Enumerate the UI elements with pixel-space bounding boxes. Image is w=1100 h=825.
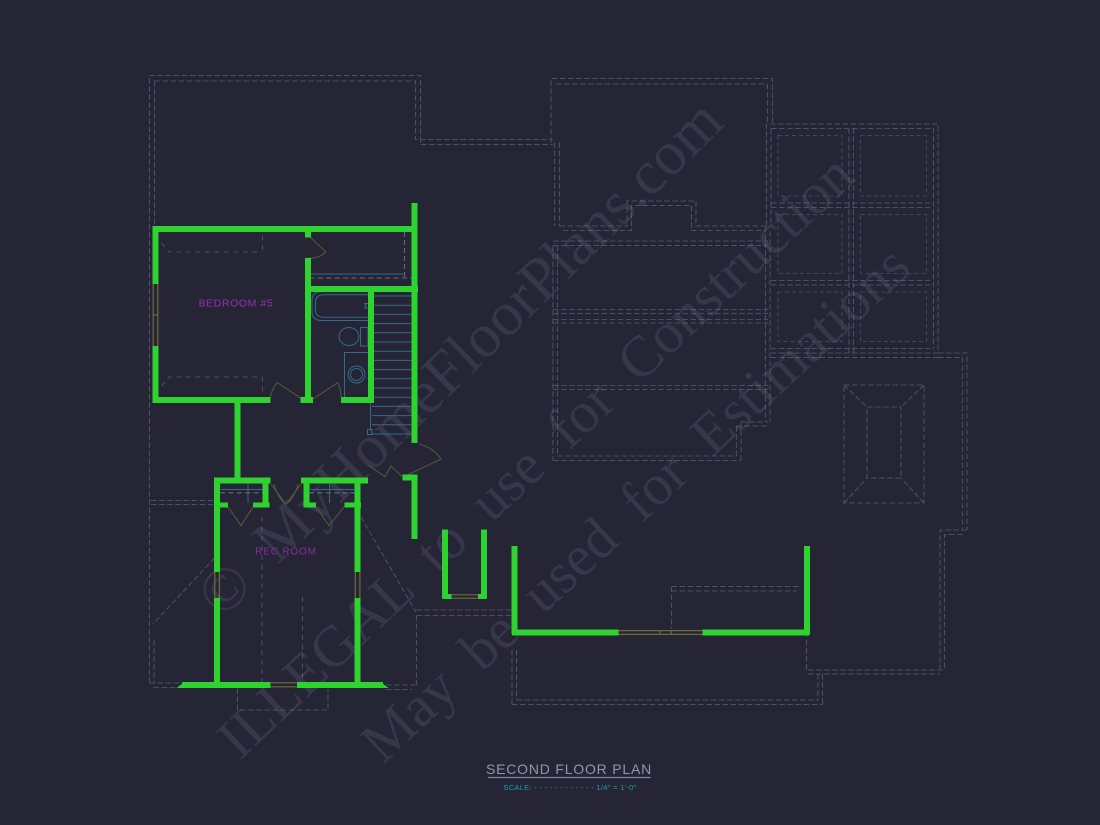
svg-text:SCALE: - - - - - - - - - - - -: SCALE: - - - - - - - - - - - - 1/4" = 1'… — [503, 783, 636, 792]
svg-text:SECOND FLOOR PLAN: SECOND FLOOR PLAN — [486, 761, 652, 777]
svg-text:REC ROOM: REC ROOM — [255, 547, 316, 558]
svg-text:BEDROOM #5: BEDROOM #5 — [199, 298, 274, 310]
